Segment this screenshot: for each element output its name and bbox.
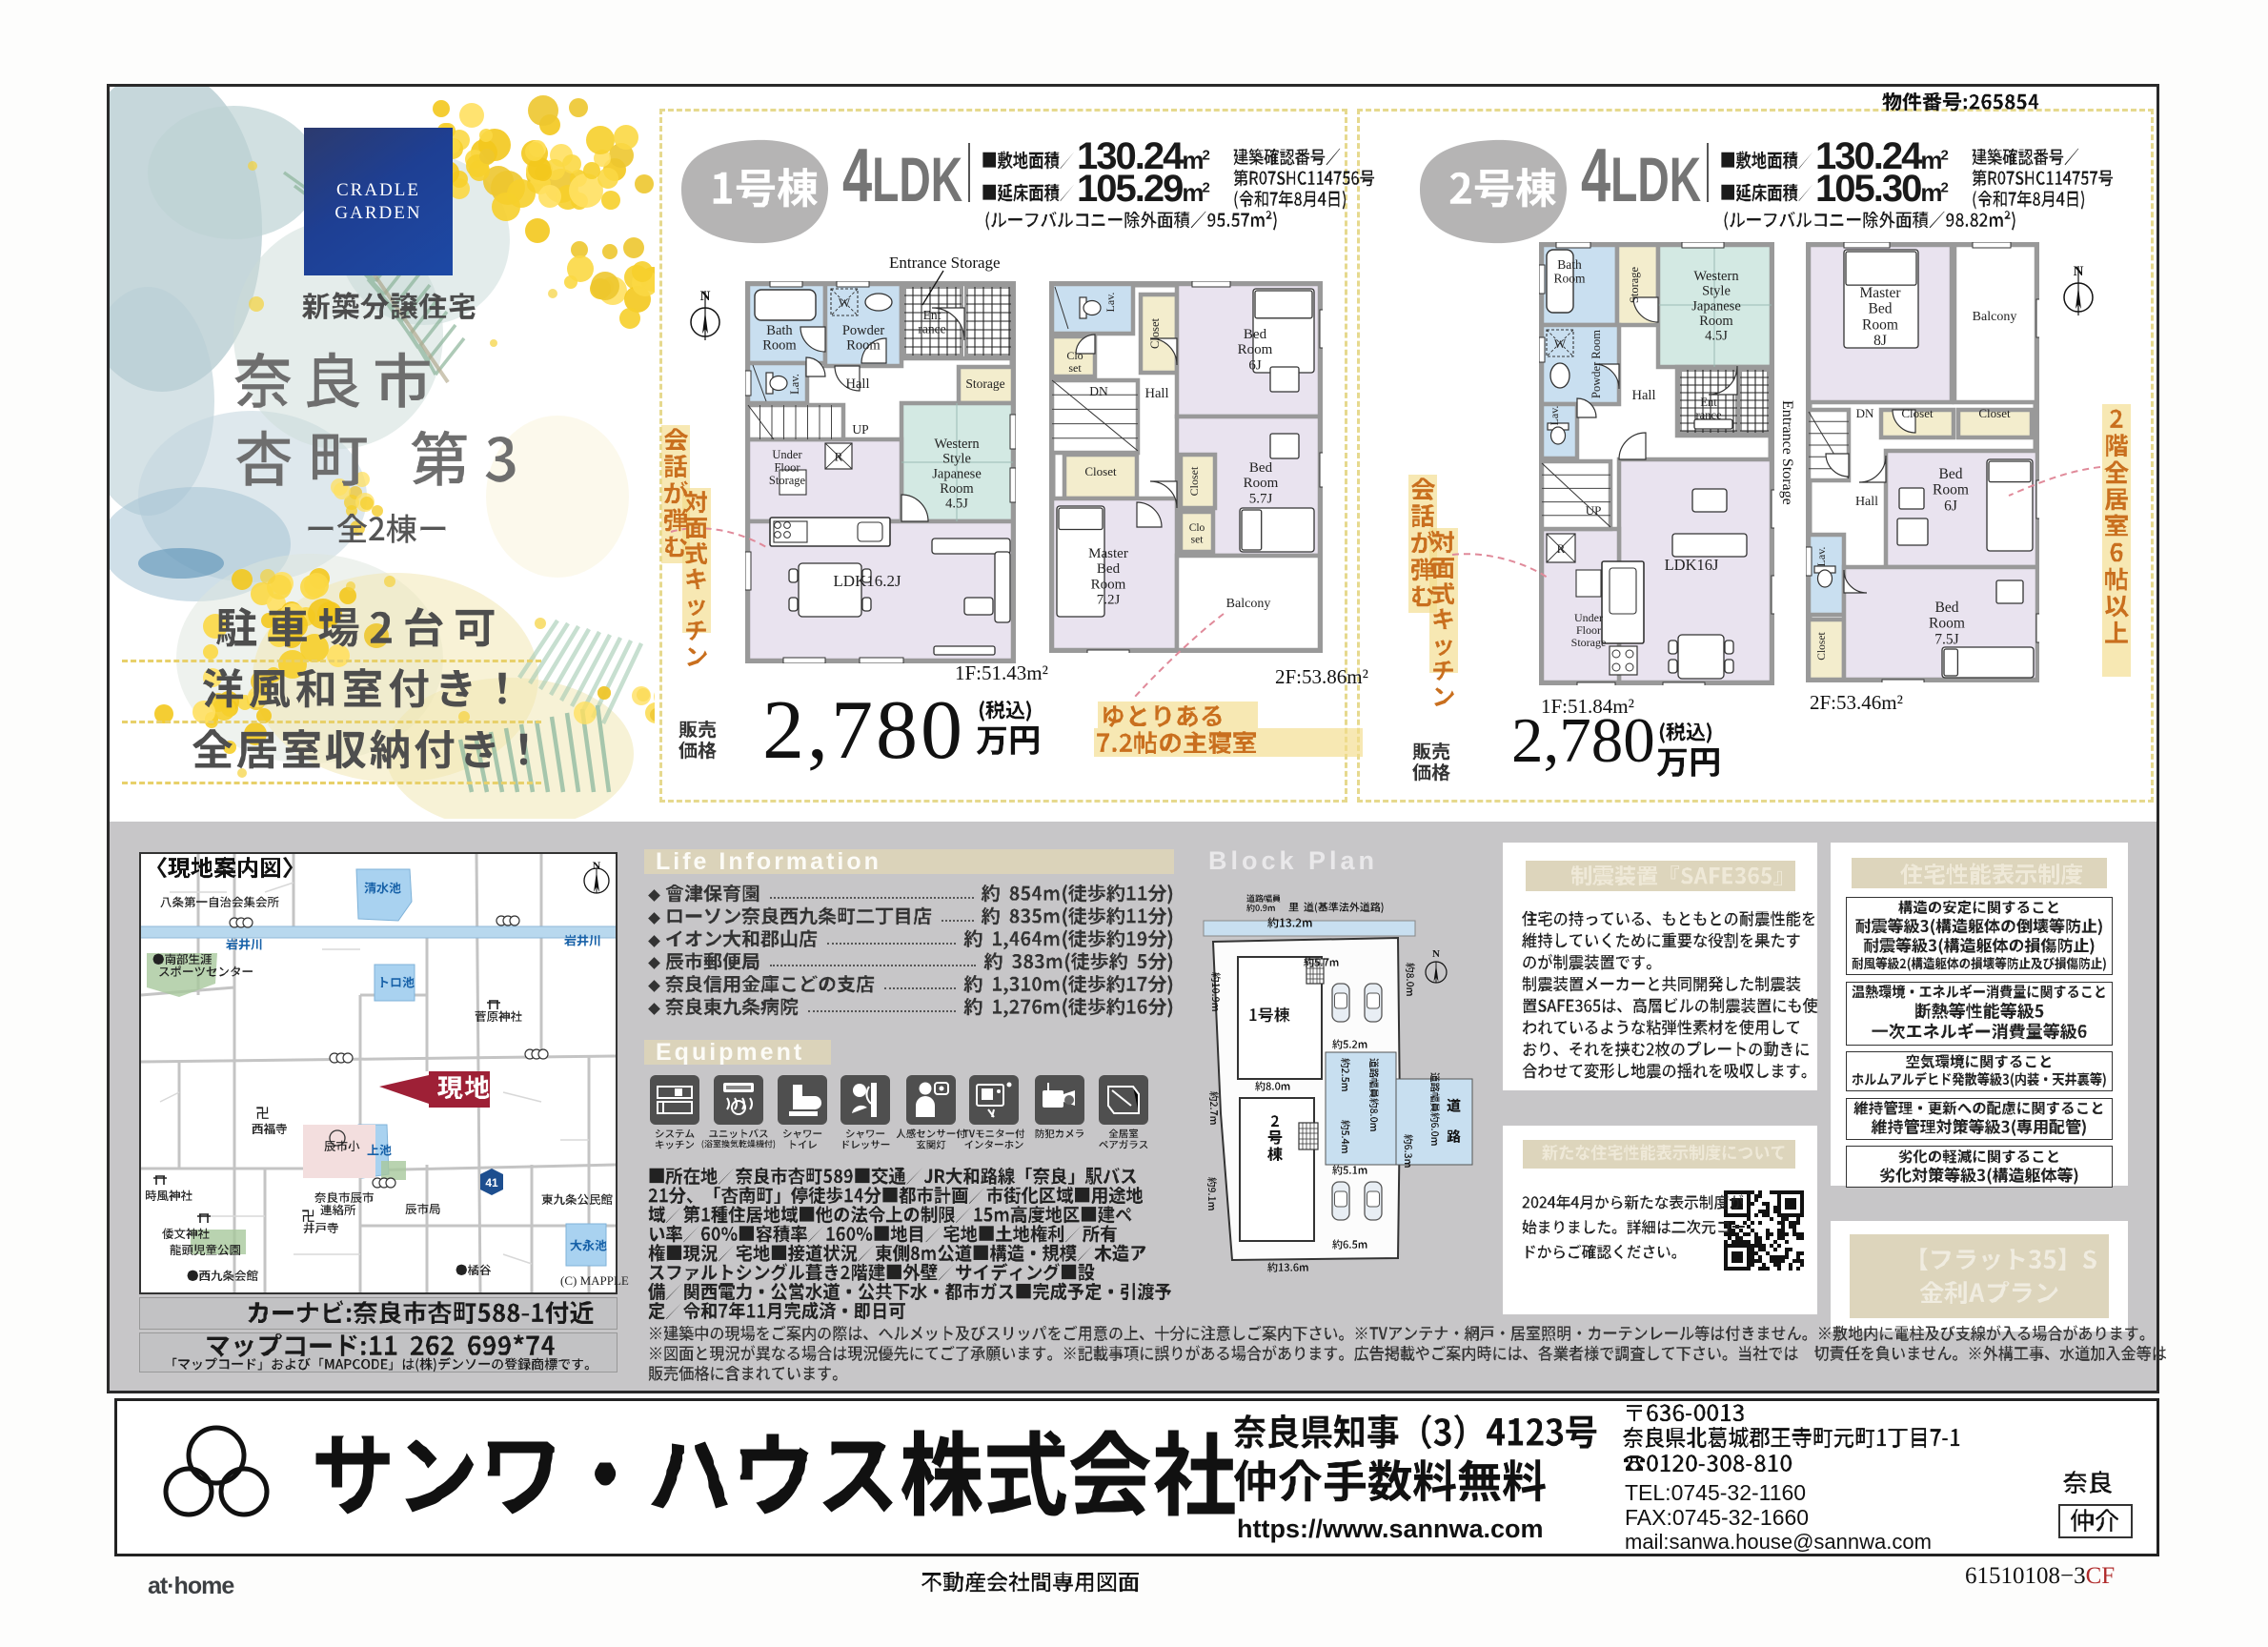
svg-text:W: W xyxy=(1554,336,1567,351)
svg-text:Closet: Closet xyxy=(1816,632,1828,661)
svg-text:UP: UP xyxy=(852,422,868,437)
svg-text:Lav.: Lav. xyxy=(1548,406,1561,426)
svg-text:UnderFloorStorage: UnderFloorStorage xyxy=(1571,611,1607,649)
svg-text:Closet: Closet xyxy=(1148,318,1162,349)
svg-text:R: R xyxy=(835,450,843,464)
svg-text:Closet: Closet xyxy=(1978,406,2011,420)
svg-text:Lav.: Lav. xyxy=(1104,293,1117,313)
svg-text:N: N xyxy=(1432,948,1440,960)
svg-text:W: W xyxy=(839,295,851,310)
svg-text:PowderRoom: PowderRoom xyxy=(842,323,884,354)
svg-text:R: R xyxy=(1557,541,1566,556)
svg-text:Hall: Hall xyxy=(1632,388,1656,403)
svg-text:Closet: Closet xyxy=(1187,466,1201,496)
svg-text:Hall: Hall xyxy=(846,376,870,392)
svg-text:Hall: Hall xyxy=(1855,495,1878,509)
svg-text:Storage: Storage xyxy=(965,376,1004,391)
svg-text:Balcony: Balcony xyxy=(1226,597,1271,611)
svg-text:Closet: Closet xyxy=(1066,349,1083,375)
svg-text:Closet: Closet xyxy=(1189,522,1205,545)
svg-text:UP: UP xyxy=(1586,503,1602,518)
svg-text:DN: DN xyxy=(1089,384,1108,398)
svg-text:LDK16J: LDK16J xyxy=(1665,556,1719,574)
svg-text:41: 41 xyxy=(485,1176,498,1189)
svg-text:BathRoom: BathRoom xyxy=(1553,257,1586,286)
svg-text:Lav.: Lav. xyxy=(1814,547,1828,567)
svg-text:Closet: Closet xyxy=(1901,406,1934,420)
svg-text:Lav.: Lav. xyxy=(788,374,801,395)
svg-text:LDK16.2J: LDK16.2J xyxy=(833,572,901,590)
svg-text:Powder Room: Powder Room xyxy=(1590,330,1603,398)
svg-text:Storage: Storage xyxy=(1628,266,1641,303)
svg-text:BathRoom: BathRoom xyxy=(762,323,797,354)
svg-text:Balcony: Balcony xyxy=(1973,310,2017,324)
svg-text:Hall: Hall xyxy=(1145,386,1169,401)
svg-text:Closet: Closet xyxy=(1084,464,1117,478)
svg-text:DN: DN xyxy=(1856,406,1874,420)
